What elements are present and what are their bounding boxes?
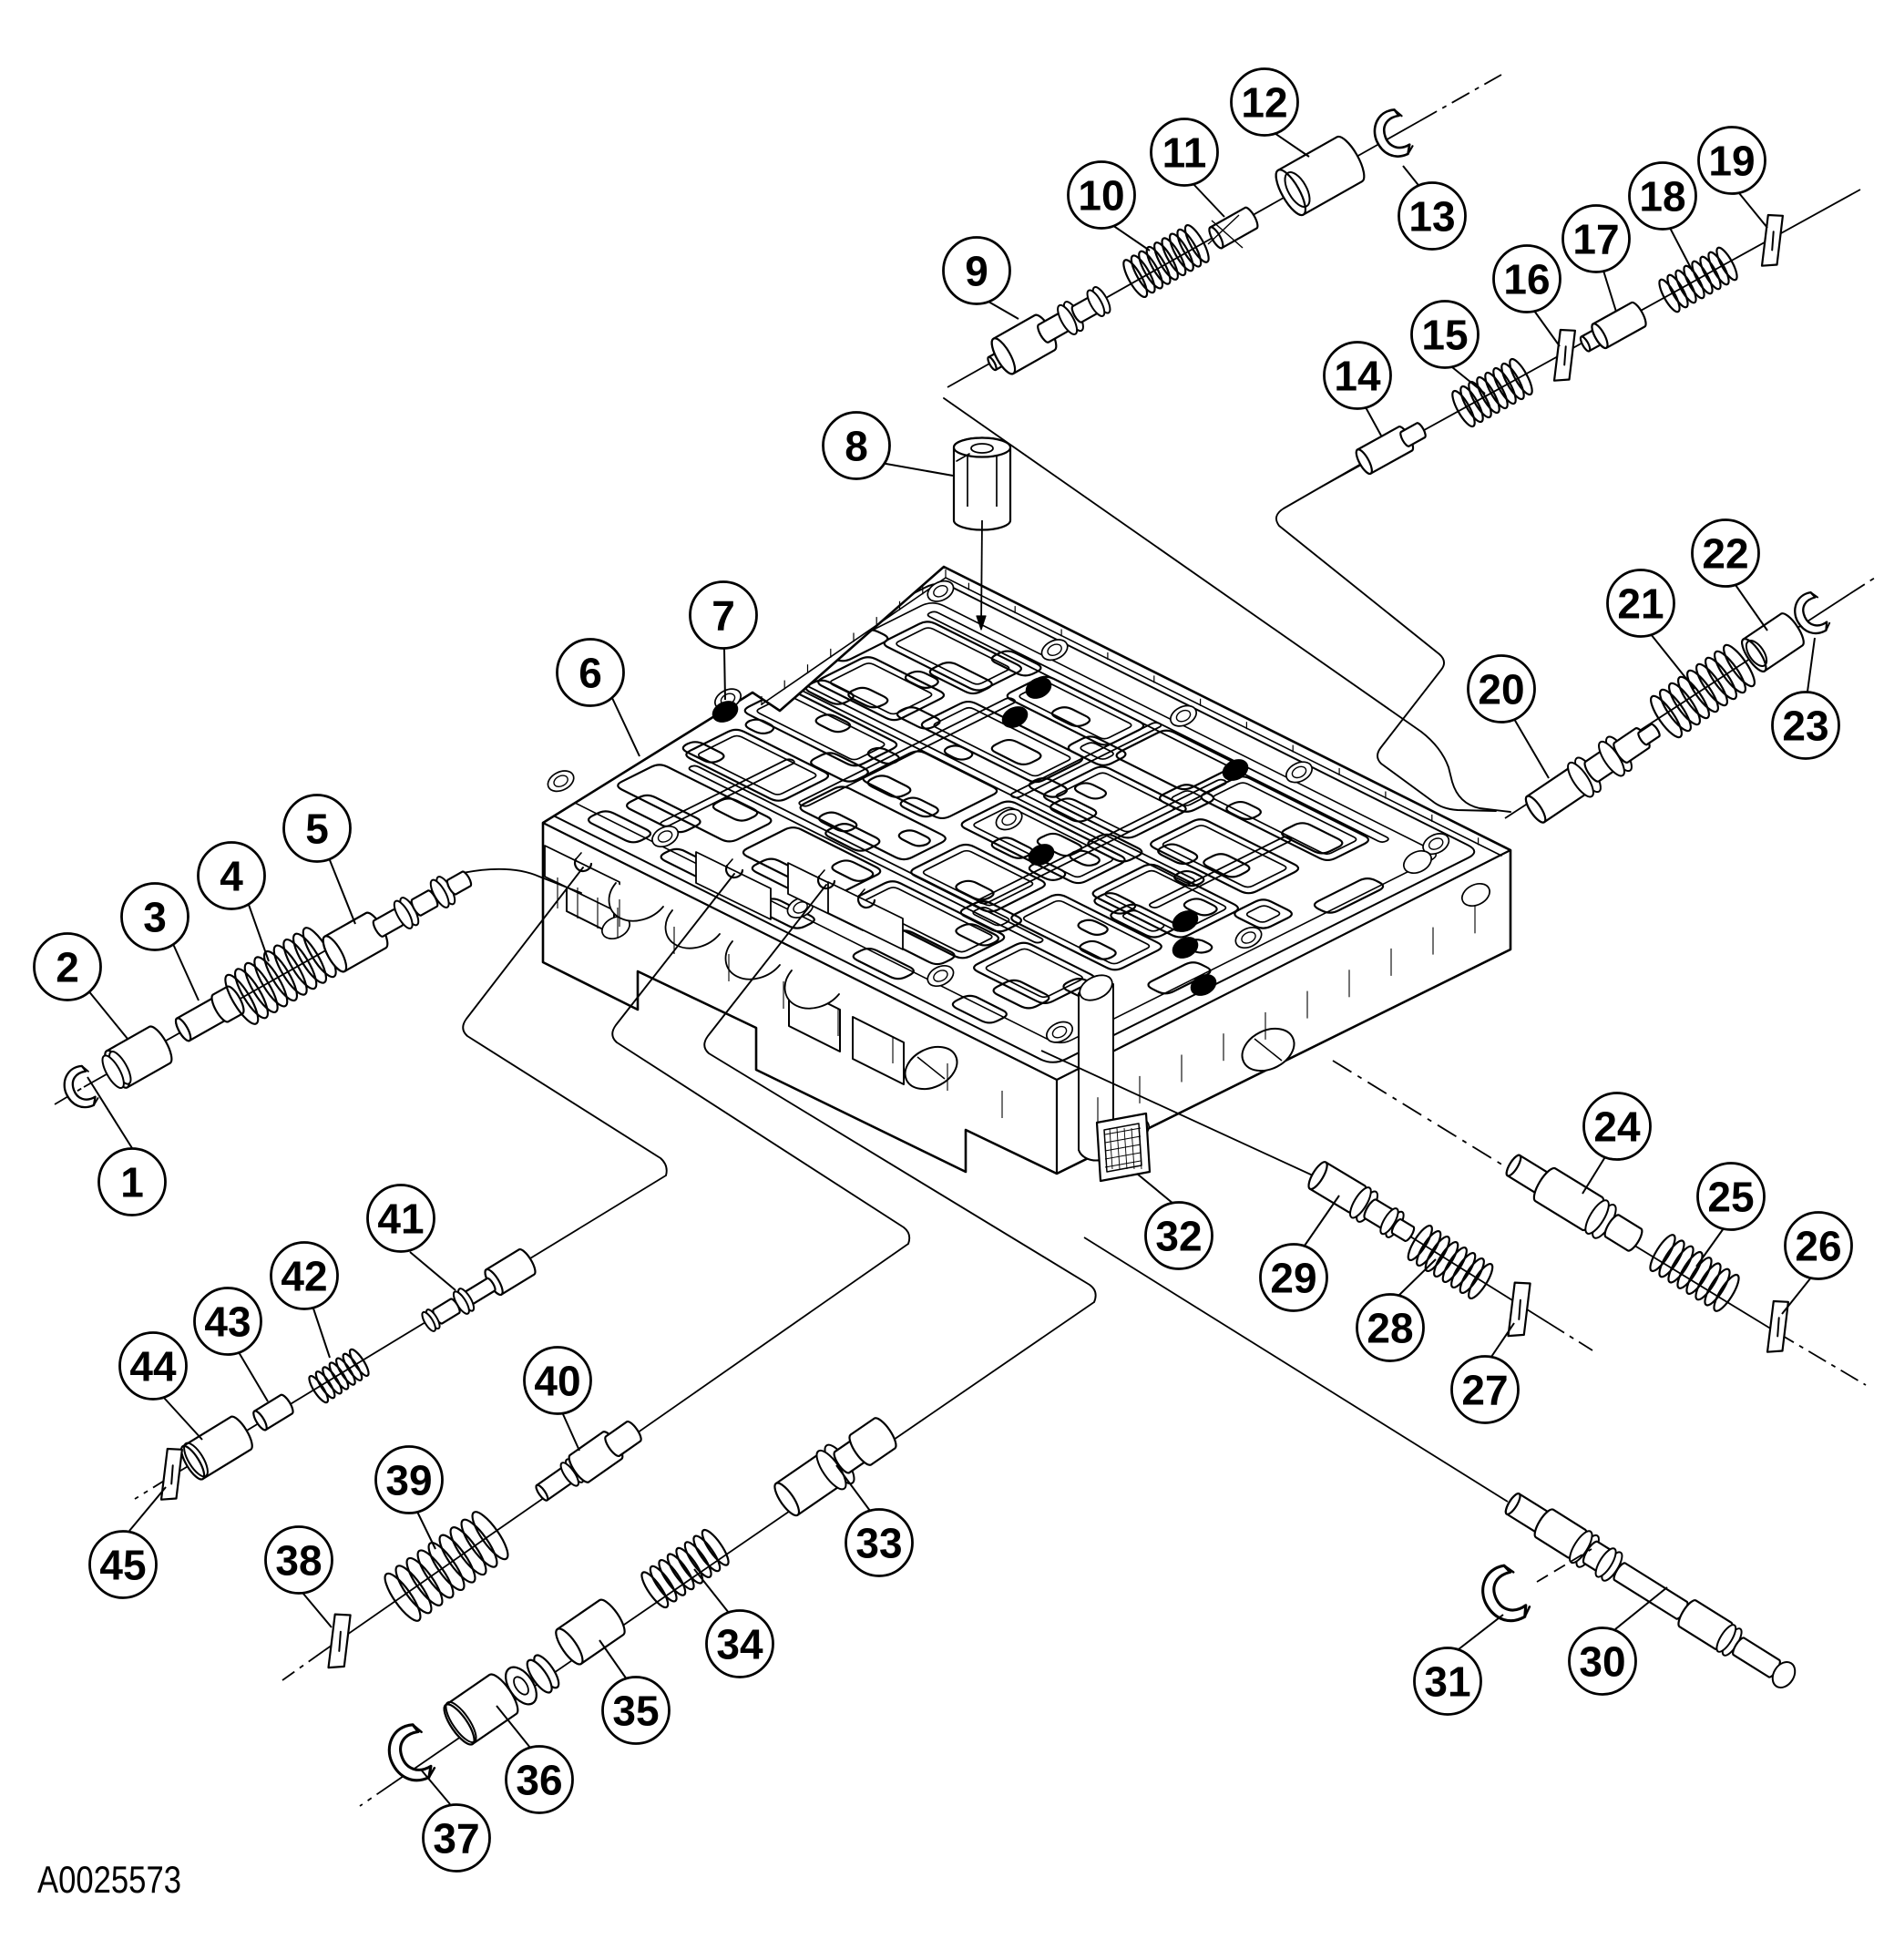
- svg-text:10: 10: [1078, 172, 1124, 220]
- svg-text:30: 30: [1579, 1638, 1625, 1686]
- svg-text:28: 28: [1367, 1305, 1413, 1352]
- svg-text:40: 40: [534, 1358, 580, 1405]
- svg-text:7: 7: [712, 592, 735, 640]
- svg-text:17: 17: [1572, 216, 1619, 263]
- svg-text:20: 20: [1478, 666, 1524, 713]
- svg-text:13: 13: [1408, 193, 1455, 241]
- svg-text:35: 35: [612, 1688, 659, 1735]
- svg-text:44: 44: [129, 1343, 177, 1390]
- svg-text:A0025573: A0025573: [37, 1858, 181, 1901]
- svg-text:9: 9: [965, 248, 988, 295]
- svg-text:45: 45: [99, 1542, 146, 1589]
- svg-text:14: 14: [1334, 353, 1381, 400]
- svg-text:18: 18: [1639, 173, 1685, 221]
- svg-text:1: 1: [120, 1159, 144, 1206]
- svg-text:5: 5: [305, 806, 329, 853]
- svg-text:26: 26: [1795, 1223, 1841, 1270]
- svg-text:33: 33: [855, 1520, 902, 1567]
- svg-text:23: 23: [1782, 703, 1828, 750]
- svg-text:43: 43: [204, 1298, 251, 1346]
- svg-text:38: 38: [275, 1537, 322, 1585]
- svg-text:31: 31: [1424, 1658, 1470, 1706]
- svg-text:36: 36: [516, 1757, 562, 1804]
- svg-text:27: 27: [1461, 1367, 1508, 1414]
- svg-text:41: 41: [377, 1195, 424, 1243]
- svg-text:34: 34: [716, 1621, 763, 1668]
- svg-text:32: 32: [1155, 1213, 1202, 1260]
- svg-text:8: 8: [845, 423, 868, 470]
- svg-text:2: 2: [56, 944, 79, 991]
- svg-text:24: 24: [1593, 1103, 1641, 1151]
- svg-text:12: 12: [1241, 79, 1287, 127]
- svg-text:3: 3: [143, 894, 167, 941]
- svg-text:4: 4: [220, 853, 243, 900]
- svg-text:22: 22: [1702, 530, 1748, 578]
- svg-text:6: 6: [579, 650, 602, 697]
- svg-text:42: 42: [281, 1253, 327, 1300]
- svg-text:25: 25: [1707, 1174, 1754, 1221]
- svg-text:15: 15: [1421, 312, 1468, 359]
- svg-text:19: 19: [1708, 138, 1755, 185]
- svg-text:16: 16: [1503, 256, 1550, 303]
- svg-text:39: 39: [385, 1457, 432, 1504]
- svg-text:29: 29: [1270, 1255, 1316, 1302]
- svg-text:37: 37: [433, 1815, 479, 1863]
- svg-text:21: 21: [1617, 580, 1664, 628]
- svg-text:11: 11: [1162, 129, 1207, 177]
